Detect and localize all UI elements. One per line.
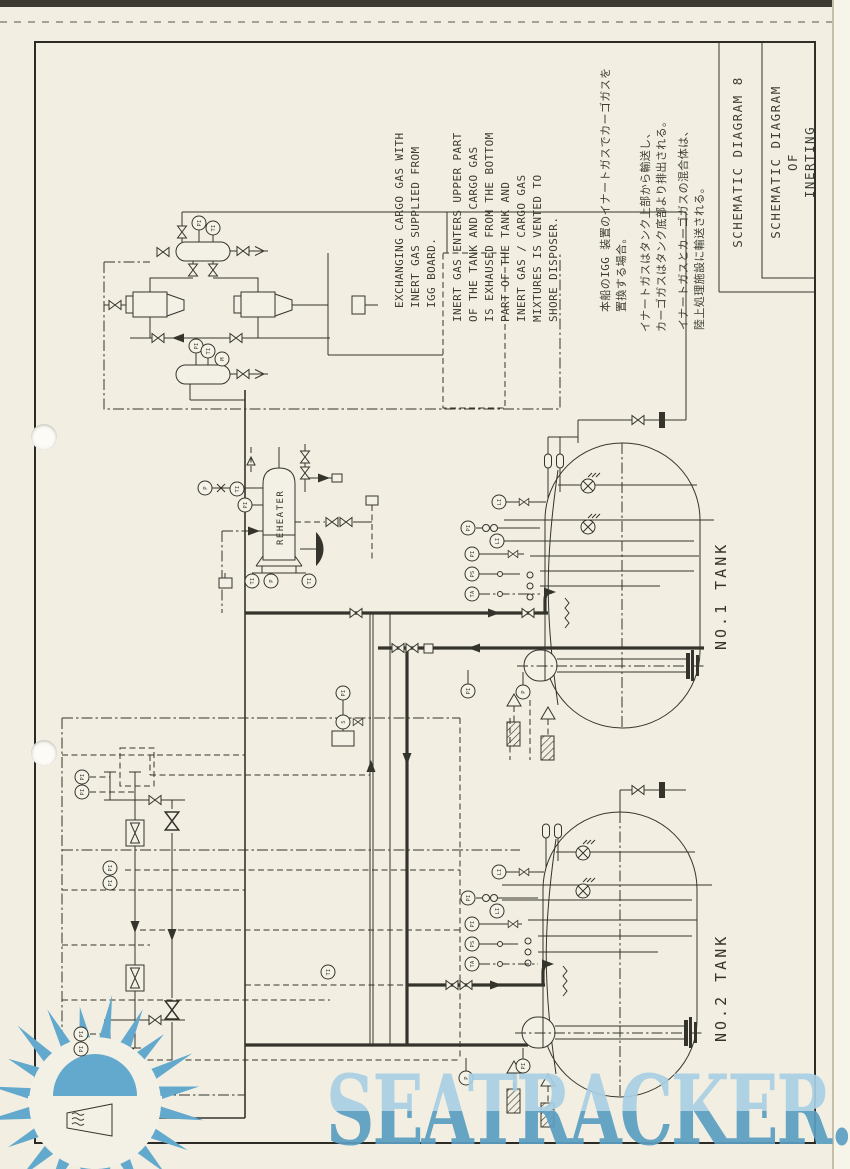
instrument-bubble: TI bbox=[201, 344, 215, 358]
svg-text:PI: PI bbox=[470, 920, 476, 927]
svg-text:TI: TI bbox=[235, 485, 241, 492]
instrument-bubble: PI bbox=[75, 785, 89, 799]
svg-text:PI: PI bbox=[466, 687, 472, 694]
instrument-bubble: TA bbox=[465, 587, 479, 601]
svg-text:LI: LI bbox=[495, 537, 501, 544]
instrument-bubble: TI bbox=[230, 482, 244, 496]
instrument-bubble: LI bbox=[492, 495, 506, 509]
instrument-bubble: M bbox=[215, 352, 229, 366]
instrument-bubble: PI bbox=[192, 216, 206, 230]
svg-text:PI: PI bbox=[194, 342, 200, 349]
instrument-bubble: TI bbox=[245, 574, 259, 588]
instrument-bubble: PI bbox=[465, 547, 479, 561]
instrument-bubble: PS bbox=[465, 937, 479, 951]
svg-text:M: M bbox=[220, 357, 226, 361]
svg-text:PI: PI bbox=[470, 550, 476, 557]
svg-text:TI: TI bbox=[211, 224, 217, 231]
svg-text:PI: PI bbox=[79, 1030, 85, 1037]
instrument-bubble: LI bbox=[490, 534, 504, 548]
svg-text:LI: LI bbox=[497, 868, 503, 875]
svg-text:PI: PI bbox=[79, 1045, 85, 1052]
scan-dashed-line-artifact bbox=[0, 21, 850, 23]
svg-text:TI: TI bbox=[326, 968, 332, 975]
instrument-bubble: PI bbox=[74, 1027, 88, 1041]
svg-text:P: P bbox=[269, 579, 275, 583]
svg-text:TI: TI bbox=[206, 347, 212, 354]
instrument-bubble: LI bbox=[490, 904, 504, 918]
note-japanese-2: イナートガスはタンク上部から輸送し、 カーゴガスはタンク底部より排出される。 bbox=[638, 64, 670, 332]
instrument-bubble: PI bbox=[461, 891, 475, 905]
drawing-title: SCHEMATIC DIAGRAM OF INERTING bbox=[768, 62, 819, 262]
instrument-bubble: P bbox=[459, 1071, 473, 1085]
instrument-bubble: LI bbox=[492, 865, 506, 879]
svg-text:P: P bbox=[203, 486, 209, 490]
svg-text:PI: PI bbox=[197, 219, 203, 226]
svg-text:PI: PI bbox=[521, 1062, 527, 1069]
svg-text:PS: PS bbox=[470, 570, 476, 577]
svg-text:TI: TI bbox=[307, 577, 313, 584]
scanned-drawing-page: REHEATER bbox=[0, 0, 850, 1169]
instrument-bubble: TI bbox=[302, 574, 316, 588]
punch-hole bbox=[31, 740, 57, 766]
instrument-bubble: TA bbox=[465, 957, 479, 971]
scan-edge-artifact bbox=[0, 0, 850, 7]
tank2 bbox=[466, 782, 712, 1127]
svg-text:PI: PI bbox=[80, 788, 86, 795]
svg-text:TI: TI bbox=[250, 577, 256, 584]
svg-text:P: P bbox=[521, 690, 527, 694]
watermark-sun-logo bbox=[0, 995, 204, 1169]
svg-text:LI: LI bbox=[495, 907, 501, 914]
paper-edge-line bbox=[832, 0, 834, 1169]
instrument-bubble: PI bbox=[461, 684, 475, 698]
svg-text:PI: PI bbox=[466, 524, 472, 531]
tank1 bbox=[468, 412, 714, 760]
instrument-bubble: PI bbox=[103, 876, 117, 890]
svg-text:LI: LI bbox=[497, 498, 503, 505]
instrument-bubble: PI bbox=[461, 521, 475, 535]
drawing-number: SCHEMATIC DIAGRAM 8 bbox=[730, 62, 747, 262]
main-headers bbox=[126, 390, 704, 1123]
instrument-bubble: TI bbox=[206, 221, 220, 235]
svg-text:PI: PI bbox=[108, 864, 114, 871]
note-japanese-3: イナートガスとカーゴガスの混合体は、 陸上処理施設に輸送される。 bbox=[676, 62, 708, 330]
instrument-bubble: S bbox=[336, 715, 350, 729]
instrument-bubble: PI bbox=[103, 861, 117, 875]
instrument-bubble: P bbox=[264, 574, 278, 588]
instrument-bubble: P bbox=[198, 481, 212, 495]
instrument-bubble: TI bbox=[321, 965, 335, 979]
instrument-bubble: PS bbox=[465, 567, 479, 581]
control-stations bbox=[90, 748, 185, 1060]
svg-text:PI: PI bbox=[108, 879, 114, 886]
instrument-bubble: PI bbox=[75, 770, 89, 784]
svg-text:P: P bbox=[464, 1076, 470, 1080]
instrument-bubble: PI bbox=[336, 686, 350, 700]
instrument-layer: PITIPITIMPTIPITIPTIPISLIPILIPIPSTAPIPLIP… bbox=[74, 216, 530, 1085]
svg-text:PI: PI bbox=[341, 689, 347, 696]
instrument-bubble: PI bbox=[465, 917, 479, 931]
svg-text:PI: PI bbox=[466, 894, 472, 901]
reheater: REHEATER bbox=[212, 444, 378, 613]
punch-hole bbox=[31, 424, 57, 450]
note-english-2: INERT GAS ENTERS UPPER PART OF THE TANK … bbox=[450, 62, 562, 322]
svg-text:PS: PS bbox=[470, 940, 476, 947]
paper-margin-right bbox=[834, 0, 850, 1169]
note-english-1: EXCHANGING CARGO GAS WITH INERT GAS SUPP… bbox=[392, 63, 440, 308]
instrument-bubble: P bbox=[516, 685, 530, 699]
tank1-label: NO.1 TANK bbox=[712, 542, 730, 650]
svg-text:TA: TA bbox=[470, 590, 476, 598]
instrument-bubble: PI bbox=[238, 498, 252, 512]
instrument-bubble: PI bbox=[516, 1059, 530, 1073]
svg-text:PI: PI bbox=[80, 773, 86, 780]
tank2-label: NO.2 TANK bbox=[712, 934, 730, 1042]
instrument-bubble: PI bbox=[74, 1042, 88, 1056]
svg-text:PI: PI bbox=[243, 501, 249, 508]
reheater-label: REHEATER bbox=[276, 490, 286, 545]
note-japanese-1: 本船のIGG 装置のイナートガスでカーゴガスを 置換する場合。 bbox=[598, 44, 630, 312]
svg-text:S: S bbox=[341, 720, 347, 724]
svg-text:TA: TA bbox=[470, 960, 476, 968]
